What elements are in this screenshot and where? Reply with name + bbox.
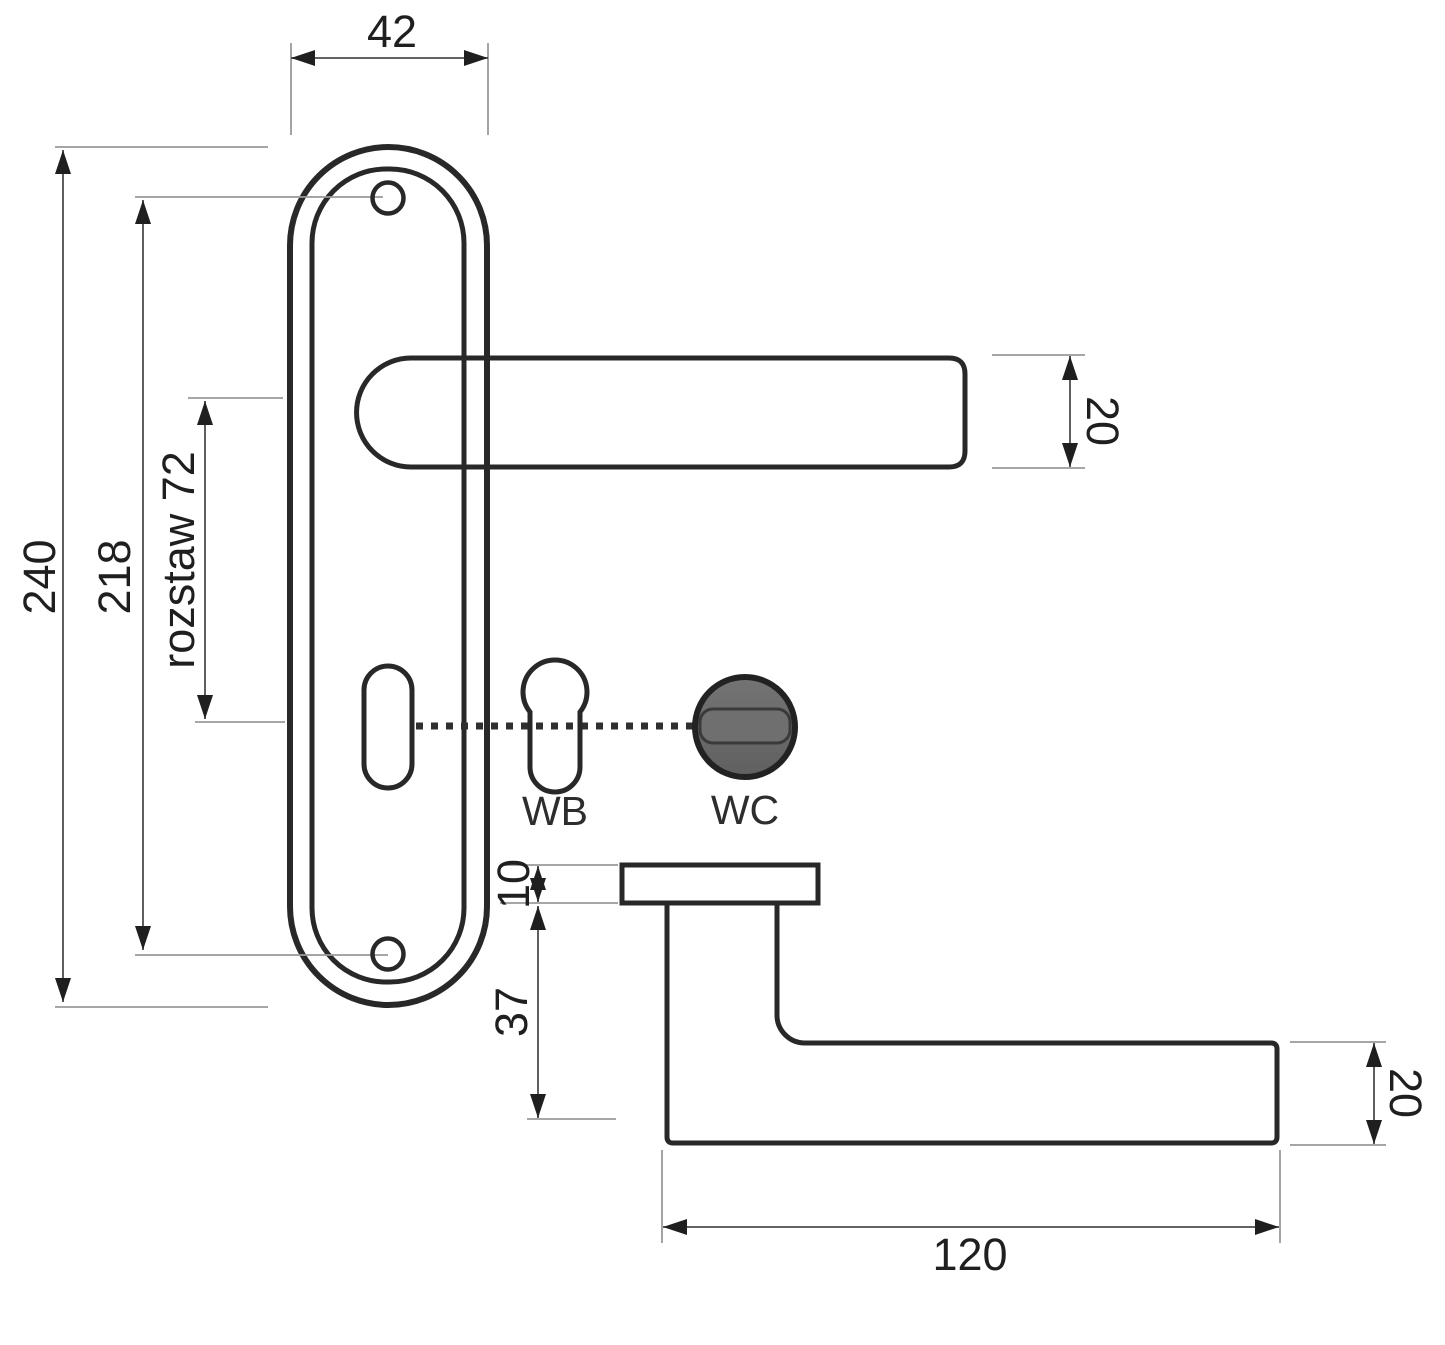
screw-hole-bottom (373, 939, 404, 970)
thumbturn-slot (700, 709, 790, 743)
rosette-side (622, 865, 818, 903)
variant-label-wk: WK (355, 788, 421, 834)
dim-text-rose-thickness: 10 (488, 859, 539, 909)
variant-label-wc: WC (711, 787, 779, 833)
backplate (290, 147, 487, 1005)
dim-text-lever-section-side: 20 (1380, 1068, 1431, 1118)
dim-text-neck-depth: 37 (486, 987, 537, 1037)
dim-text-lever-length: 120 (932, 1229, 1007, 1280)
lever-front (357, 358, 965, 467)
backplate-inner-contour (312, 169, 464, 982)
lever-side (667, 903, 1277, 1143)
dim-text-screw-spacing: 218 (89, 539, 140, 614)
dim-text-total-height: 240 (14, 539, 65, 614)
dim-text-lever-section-front: 20 (1077, 396, 1128, 446)
dim-text-axis-spacing: rozstaw 72 (153, 451, 204, 669)
screw-hole-top (373, 183, 404, 214)
drawing-canvas: 42 240 218 rozstaw 72 20 WK WB WC 10 37 … (0, 0, 1445, 1345)
variant-label-wb: WB (522, 788, 588, 834)
dim-text-plate-width: 42 (367, 6, 417, 57)
technical-drawing-svg: 42 240 218 rozstaw 72 20 WK WB WC 10 37 … (0, 0, 1445, 1345)
keyhole-wk (364, 666, 412, 788)
